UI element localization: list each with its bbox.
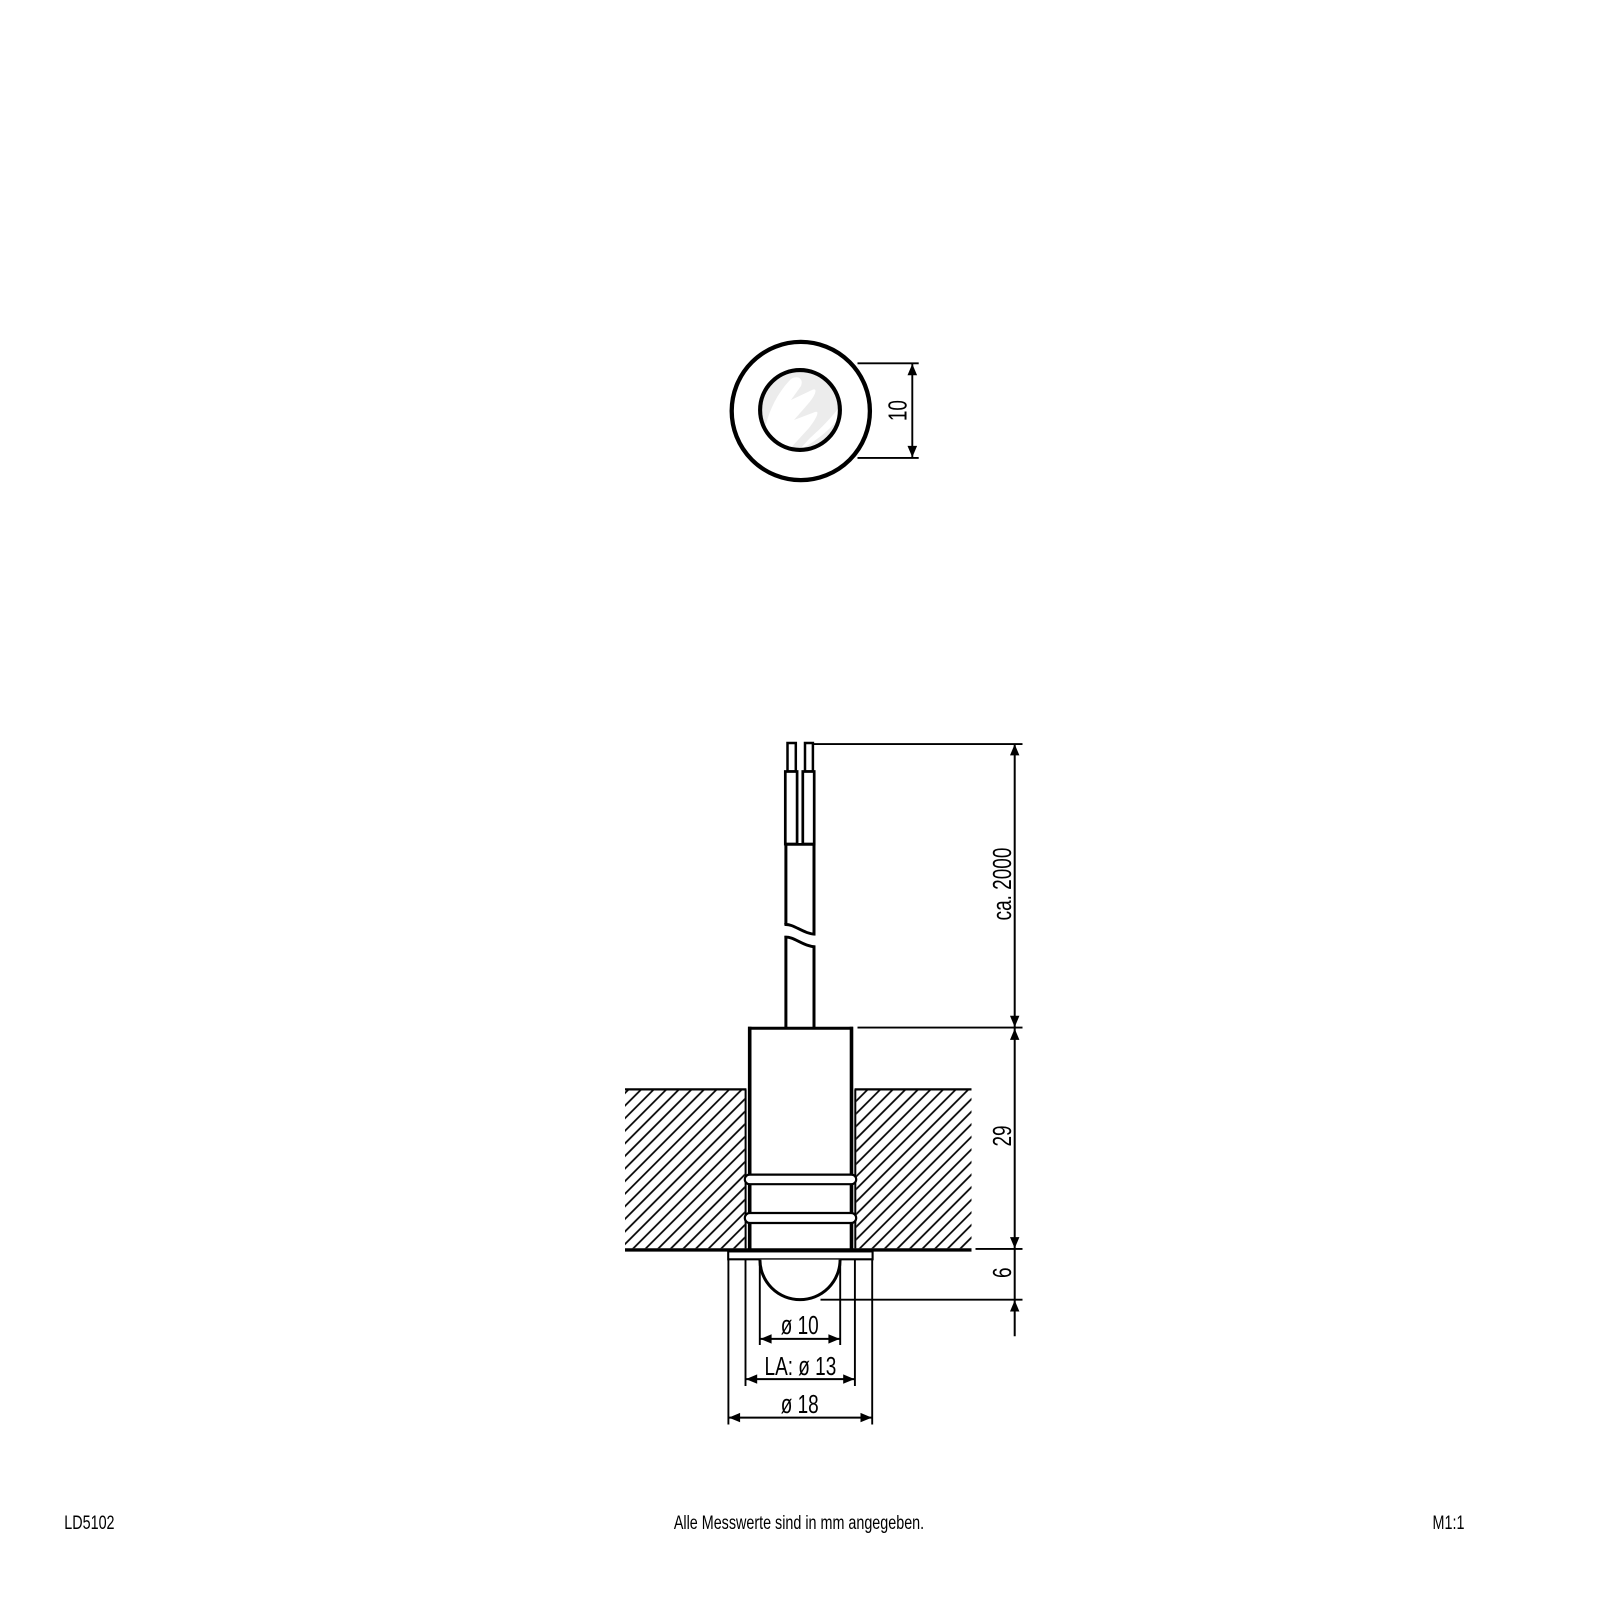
svg-text:ca. 2000: ca. 2000: [987, 848, 1017, 921]
svg-text:6: 6: [987, 1267, 1017, 1278]
svg-text:LD5102: LD5102: [64, 1512, 114, 1533]
svg-text:ø 10: ø 10: [781, 1310, 819, 1340]
svg-text:ø 18: ø 18: [781, 1389, 819, 1419]
svg-text:10: 10: [883, 400, 913, 421]
svg-text:Alle Messwerte sind in mm ange: Alle Messwerte sind in mm angegeben.: [674, 1512, 924, 1533]
svg-text:29: 29: [987, 1125, 1017, 1146]
svg-text:LA: ø 13: LA: ø 13: [765, 1351, 837, 1381]
svg-text:M1:1: M1:1: [1433, 1512, 1465, 1533]
